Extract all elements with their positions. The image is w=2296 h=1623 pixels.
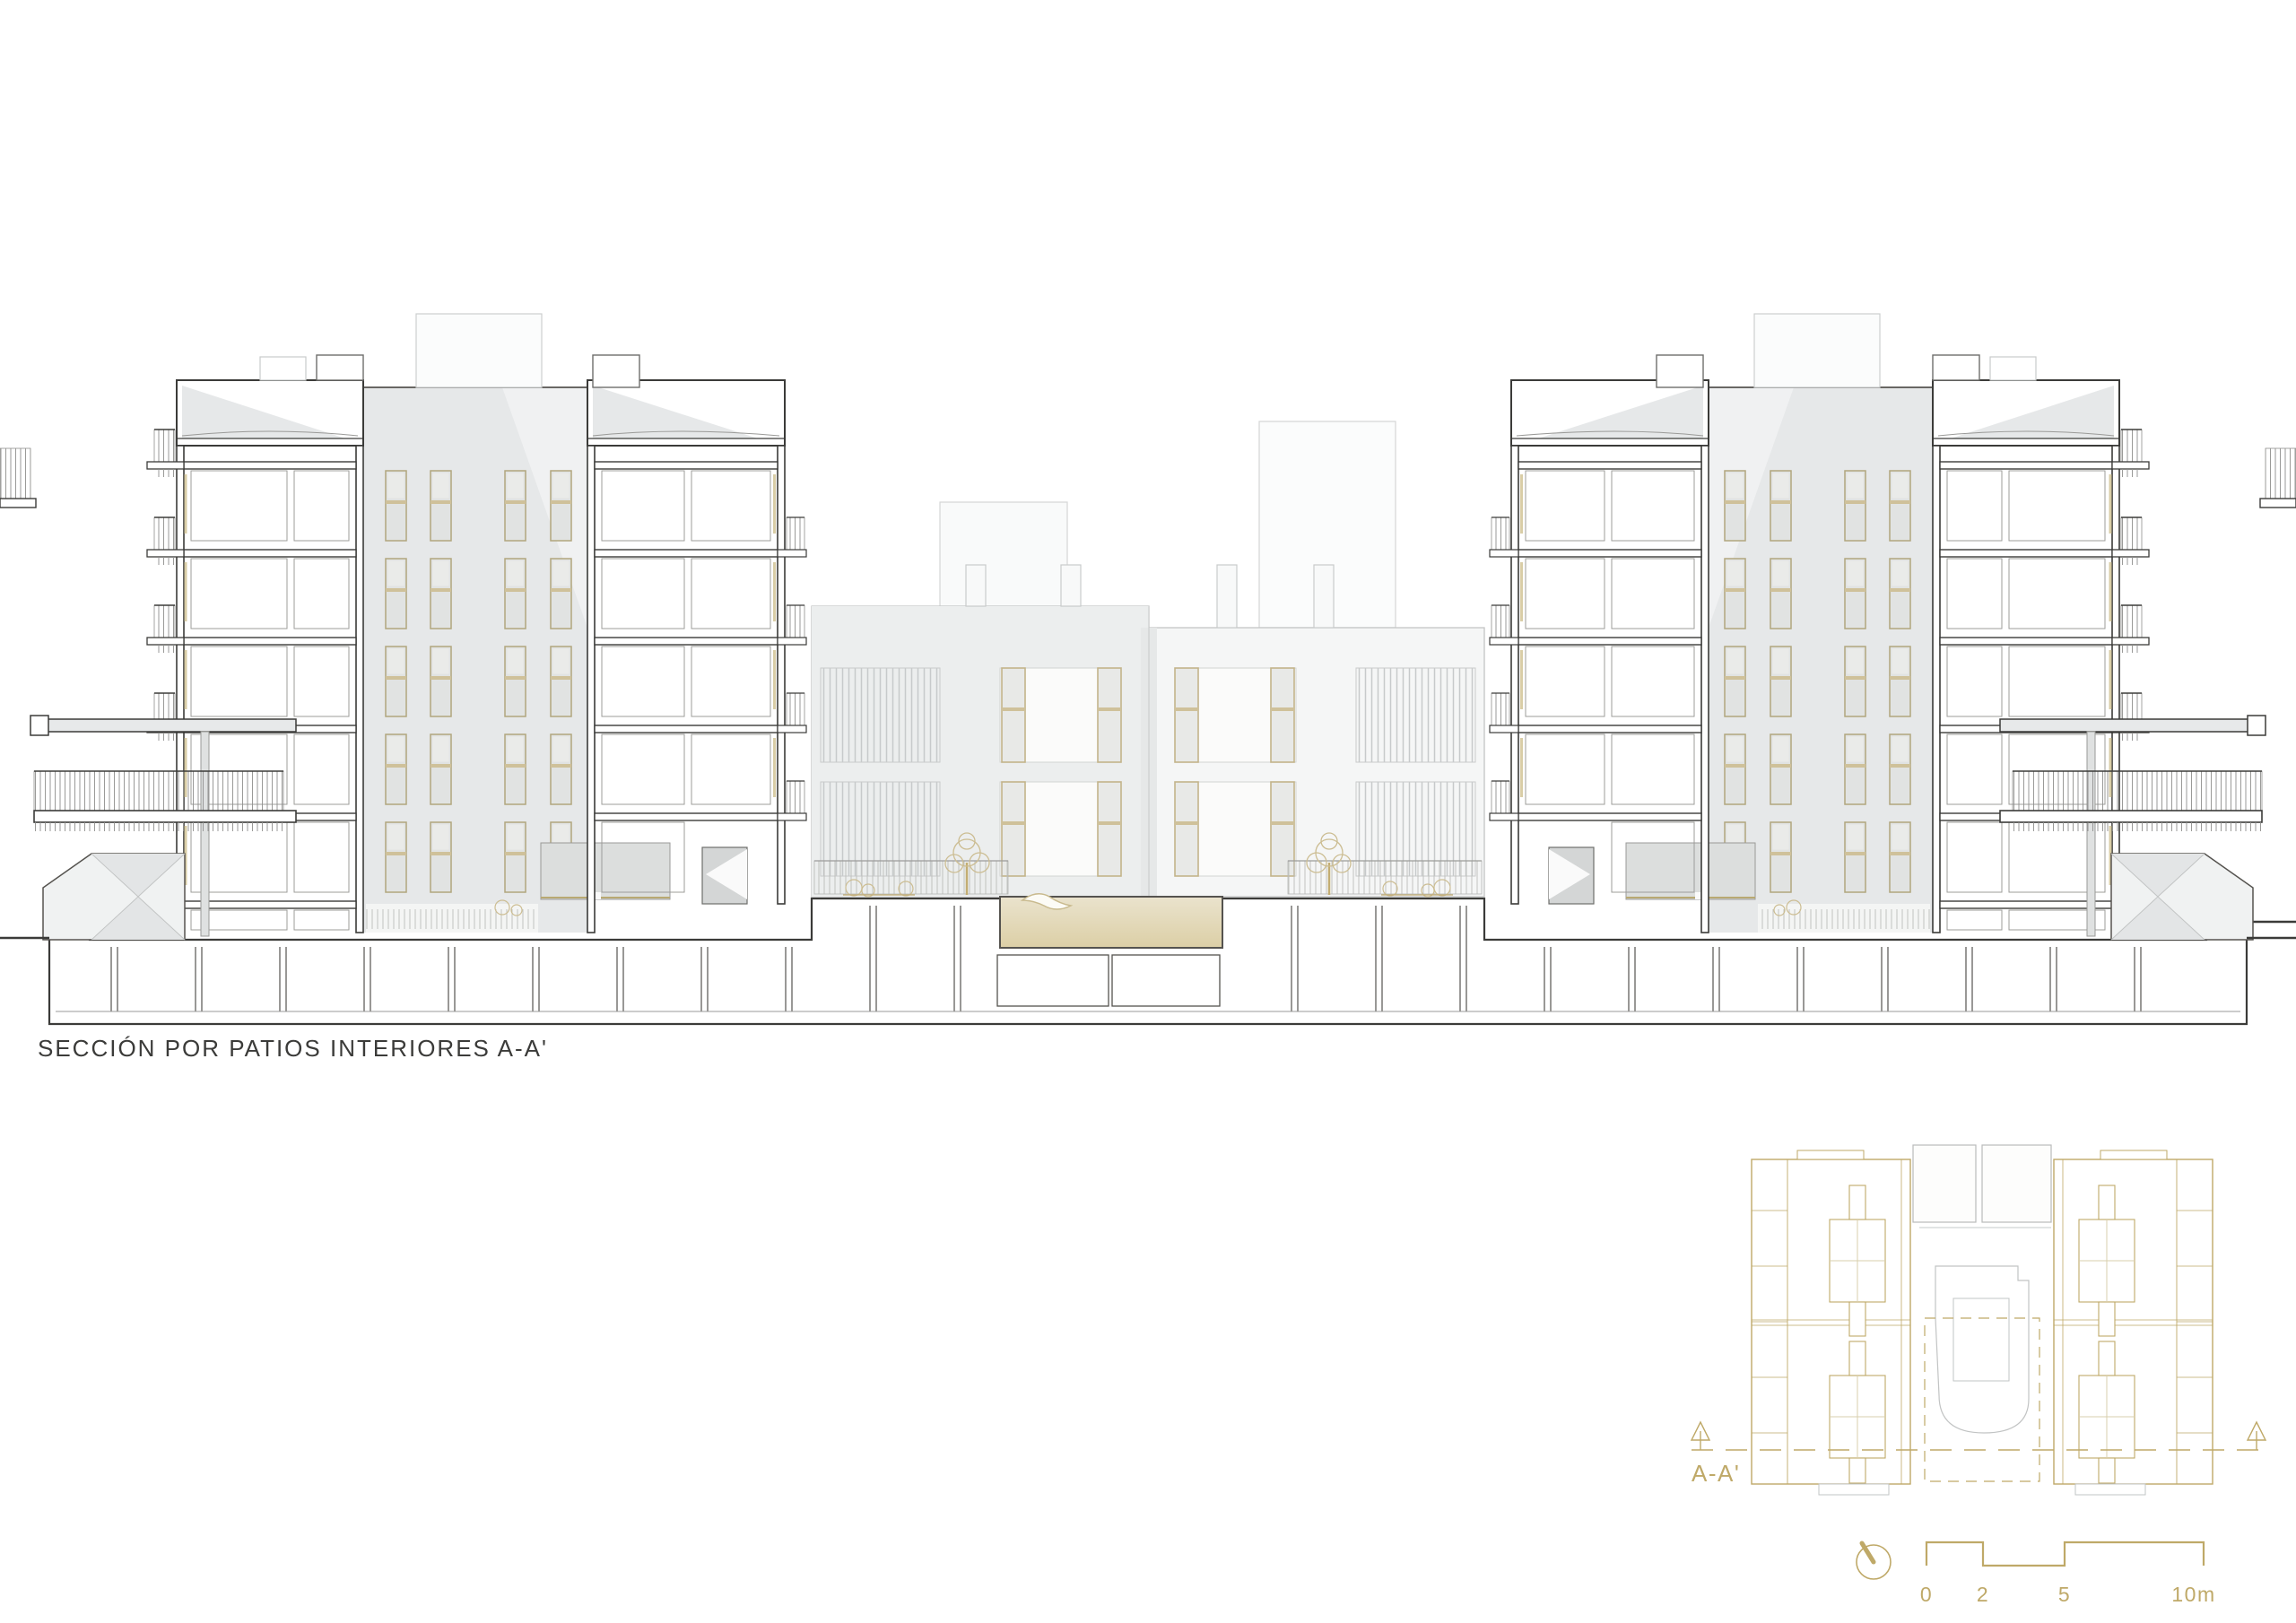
north-indicator-icon (1857, 1543, 1891, 1579)
right-access-walkway (2000, 448, 2296, 940)
left-tower (147, 314, 806, 933)
central-courtyard-building (812, 421, 1484, 897)
key-plan-right-block (2054, 1150, 2213, 1495)
scale-tick-label: 10m (2171, 1583, 2215, 1606)
section-cut-arrow-icon (2248, 1422, 2266, 1450)
drawing-title: SECCIÓN POR PATIOS INTERIORES A-A' (38, 1035, 548, 1062)
drawing-sheet: SECCIÓN POR PATIOS INTERIORES A-A' A-A' … (0, 0, 2296, 1623)
key-plan-left-block (1752, 1150, 1910, 1495)
right-tower (1490, 314, 2149, 933)
section-drawing: SECCIÓN POR PATIOS INTERIORES A-A' A-A' … (0, 0, 2296, 1623)
courtyard-pool (1000, 894, 1222, 948)
section-cut-arrow-icon (1692, 1422, 1709, 1450)
key-plan: A-A' (1692, 1145, 2266, 1495)
section-label: A-A' (1692, 1460, 1740, 1487)
scale-tick-label: 0 (1920, 1583, 1933, 1606)
scale-tick-label: 2 (1977, 1583, 1989, 1606)
scale-tick-label: 5 (2058, 1583, 2071, 1606)
left-access-walkway (0, 448, 296, 940)
scale-bar: 0 2 5 10m (1920, 1542, 2216, 1606)
